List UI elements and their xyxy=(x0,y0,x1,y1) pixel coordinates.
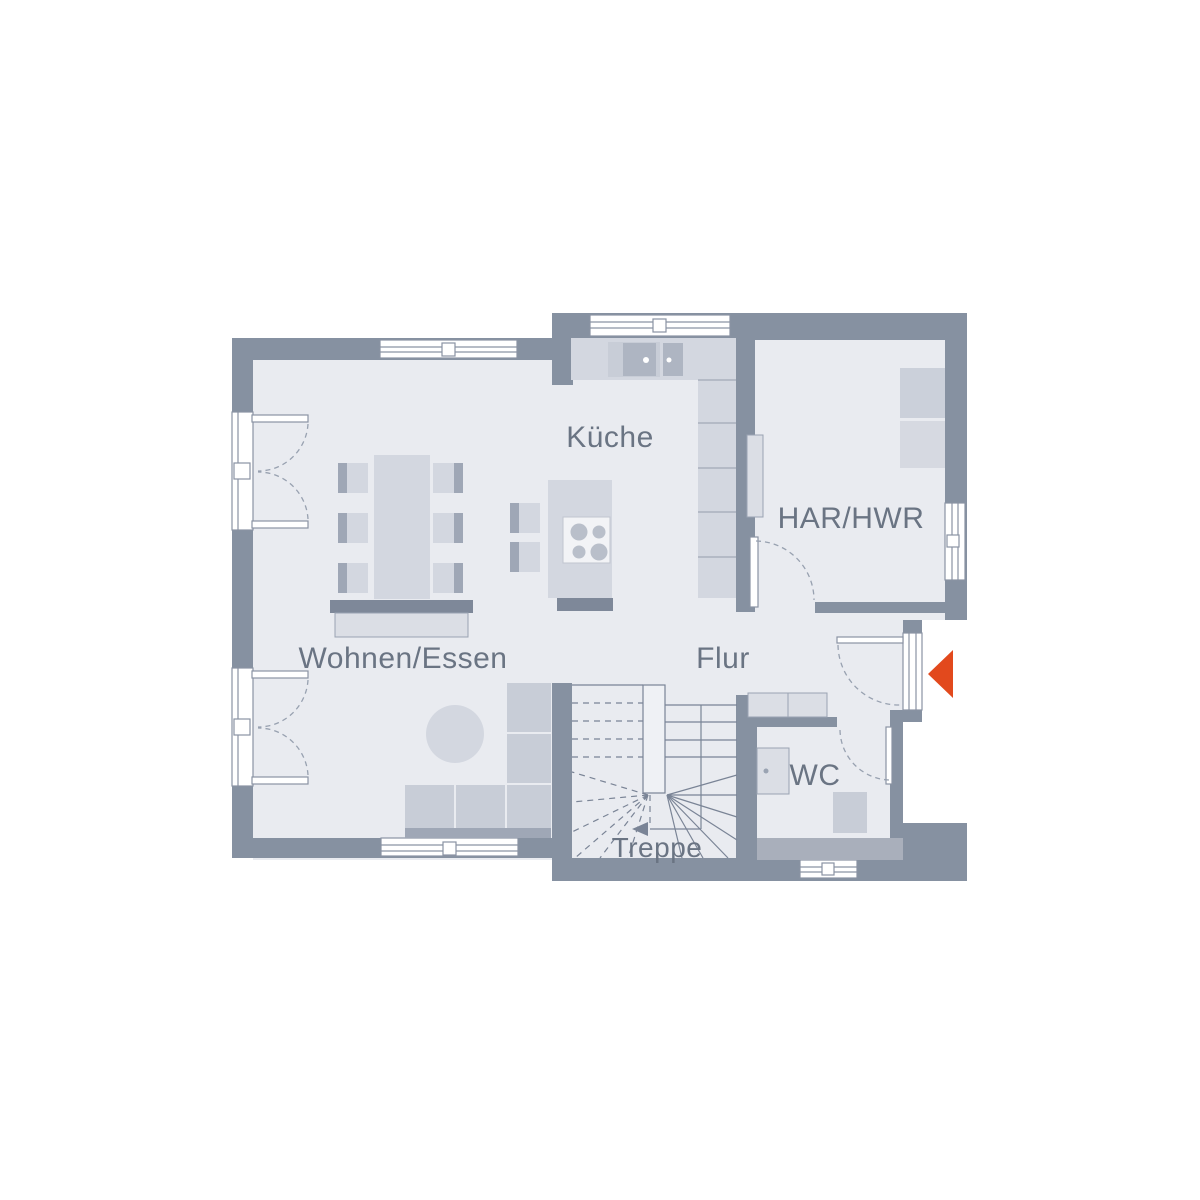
har-shelf xyxy=(747,435,763,517)
dining-chair xyxy=(338,563,368,593)
sideboard-top xyxy=(330,600,473,613)
wall-har-flur xyxy=(815,602,967,613)
dining-chair xyxy=(338,463,368,493)
furniture-flur xyxy=(748,693,827,717)
wall-stair-left xyxy=(552,683,572,858)
wall-above-entrance-door xyxy=(903,620,922,633)
wc-toilet xyxy=(833,792,867,833)
window-living-bottom xyxy=(381,838,518,856)
cooktop-burner xyxy=(593,526,606,539)
wc-faucet-dot xyxy=(764,769,769,774)
faucet-dot xyxy=(643,357,649,363)
kitchen-cabinet-column xyxy=(698,380,736,598)
wall-wc-top xyxy=(736,717,837,727)
hall-wardrobe xyxy=(748,693,788,717)
room-label-treppe: Treppe xyxy=(612,832,703,863)
room-label-wc: WC xyxy=(790,759,841,792)
faucet-dot xyxy=(667,358,672,363)
round-side-table xyxy=(426,705,484,763)
stair-well xyxy=(643,685,665,793)
wc-window-ledge xyxy=(757,838,903,860)
window-kitchen-top xyxy=(590,315,730,336)
dining-chair xyxy=(433,463,463,493)
dining-chair xyxy=(338,513,368,543)
sideboard-body xyxy=(335,613,468,637)
window-har-right xyxy=(945,503,965,580)
dining-table xyxy=(374,455,430,599)
dining-chair xyxy=(433,563,463,593)
dining-chair xyxy=(433,513,463,543)
kitchen-sink-basin xyxy=(623,343,656,376)
cooktop-burner xyxy=(573,546,586,559)
wc-sink xyxy=(757,748,789,794)
room-label-har-hwr: HAR/HWR xyxy=(778,502,925,535)
kitchen-island xyxy=(548,480,613,611)
wall-corner-bottom-right xyxy=(903,823,967,881)
bar-stool xyxy=(510,542,540,572)
window-living-top xyxy=(380,340,517,358)
cooktop-burner xyxy=(591,544,608,561)
washer-appliance xyxy=(900,368,945,418)
floor-plan-drawing: Küche HAR/HWR Wohnen/Essen Flur WC Trepp… xyxy=(0,0,1200,1200)
kitchen-sink-basin-small xyxy=(663,343,683,376)
sofa-base xyxy=(405,828,551,838)
floor-plan-canvas: Küche HAR/HWR Wohnen/Essen Flur WC Trepp… xyxy=(0,0,1200,1200)
room-label-flur: Flur xyxy=(696,642,750,675)
entrance-arrow-left-icon xyxy=(928,650,953,698)
hall-wardrobe xyxy=(788,693,827,717)
cooktop-burner xyxy=(571,524,588,541)
island-base-bar xyxy=(557,598,613,611)
room-label-wohnen-essen: Wohnen/Essen xyxy=(299,642,508,675)
window-wc-bottom xyxy=(800,860,857,878)
room-label-kueche: Küche xyxy=(566,421,654,454)
dryer-appliance xyxy=(900,421,945,468)
bar-stool xyxy=(510,503,540,533)
